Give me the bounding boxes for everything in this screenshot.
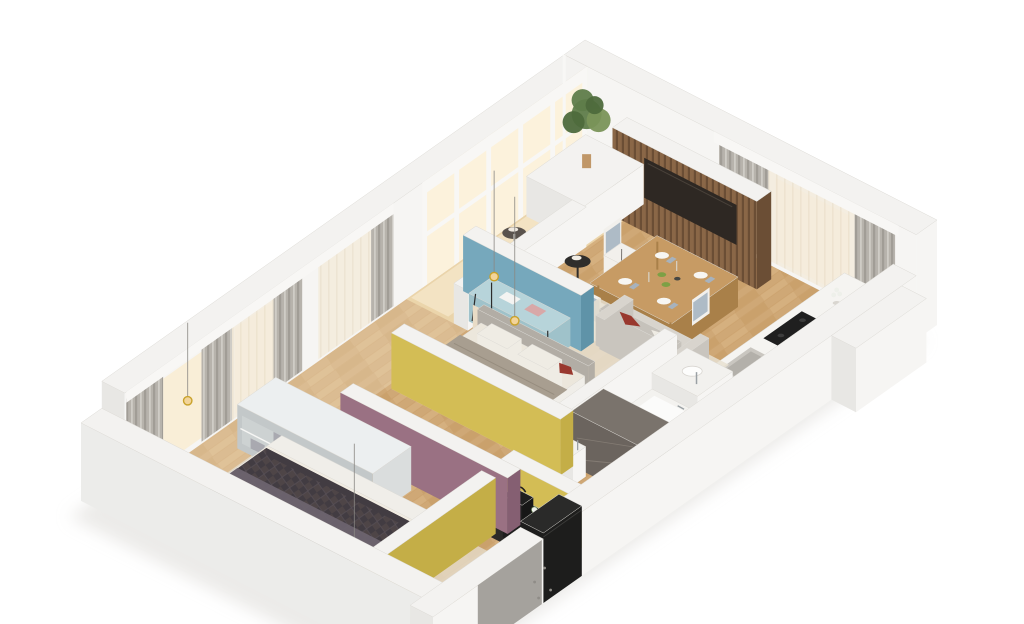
vanity-basin: [682, 366, 702, 376]
centerpiece-hydrangea: [657, 272, 666, 277]
floor-plan-stage: [0, 0, 1024, 624]
plant-foliage: [586, 96, 604, 114]
concrete-speckle: [537, 597, 540, 600]
mauve-partition-wall-face-r: [508, 469, 521, 534]
floor-plan-render: [0, 0, 1024, 624]
plate: [618, 278, 632, 285]
plant-foliage: [563, 111, 585, 133]
master-pendant-2-bulb: [184, 397, 192, 405]
cooktop-ring: [799, 318, 806, 322]
centerpiece-hydrangea: [662, 282, 671, 287]
side-table-paper: [572, 255, 582, 260]
vase-flowers: [834, 288, 839, 293]
magazine: [508, 227, 518, 231]
vase-flowers: [837, 292, 842, 297]
sofa-armrest-face-l: [596, 315, 605, 350]
kids-pendant-2-bulb: [511, 317, 519, 325]
kitchen-exterior-bump-face-l: [831, 336, 856, 413]
centerpiece-bowl: [674, 277, 680, 281]
vase-flowers: [831, 293, 836, 298]
kids-pendant-1-bulb: [490, 272, 498, 280]
concrete-speckle: [543, 567, 546, 570]
plate: [694, 272, 708, 279]
yellow-wall-1-face-r: [560, 410, 573, 475]
plate: [655, 252, 669, 259]
blue-accent-wall-face-r: [581, 286, 594, 351]
wood-slat-tv-wall-face-r: [757, 191, 771, 289]
concrete-speckle: [533, 581, 536, 584]
cooktop-ring: [778, 334, 785, 338]
plate: [657, 298, 671, 305]
concrete-speckle: [549, 589, 552, 592]
